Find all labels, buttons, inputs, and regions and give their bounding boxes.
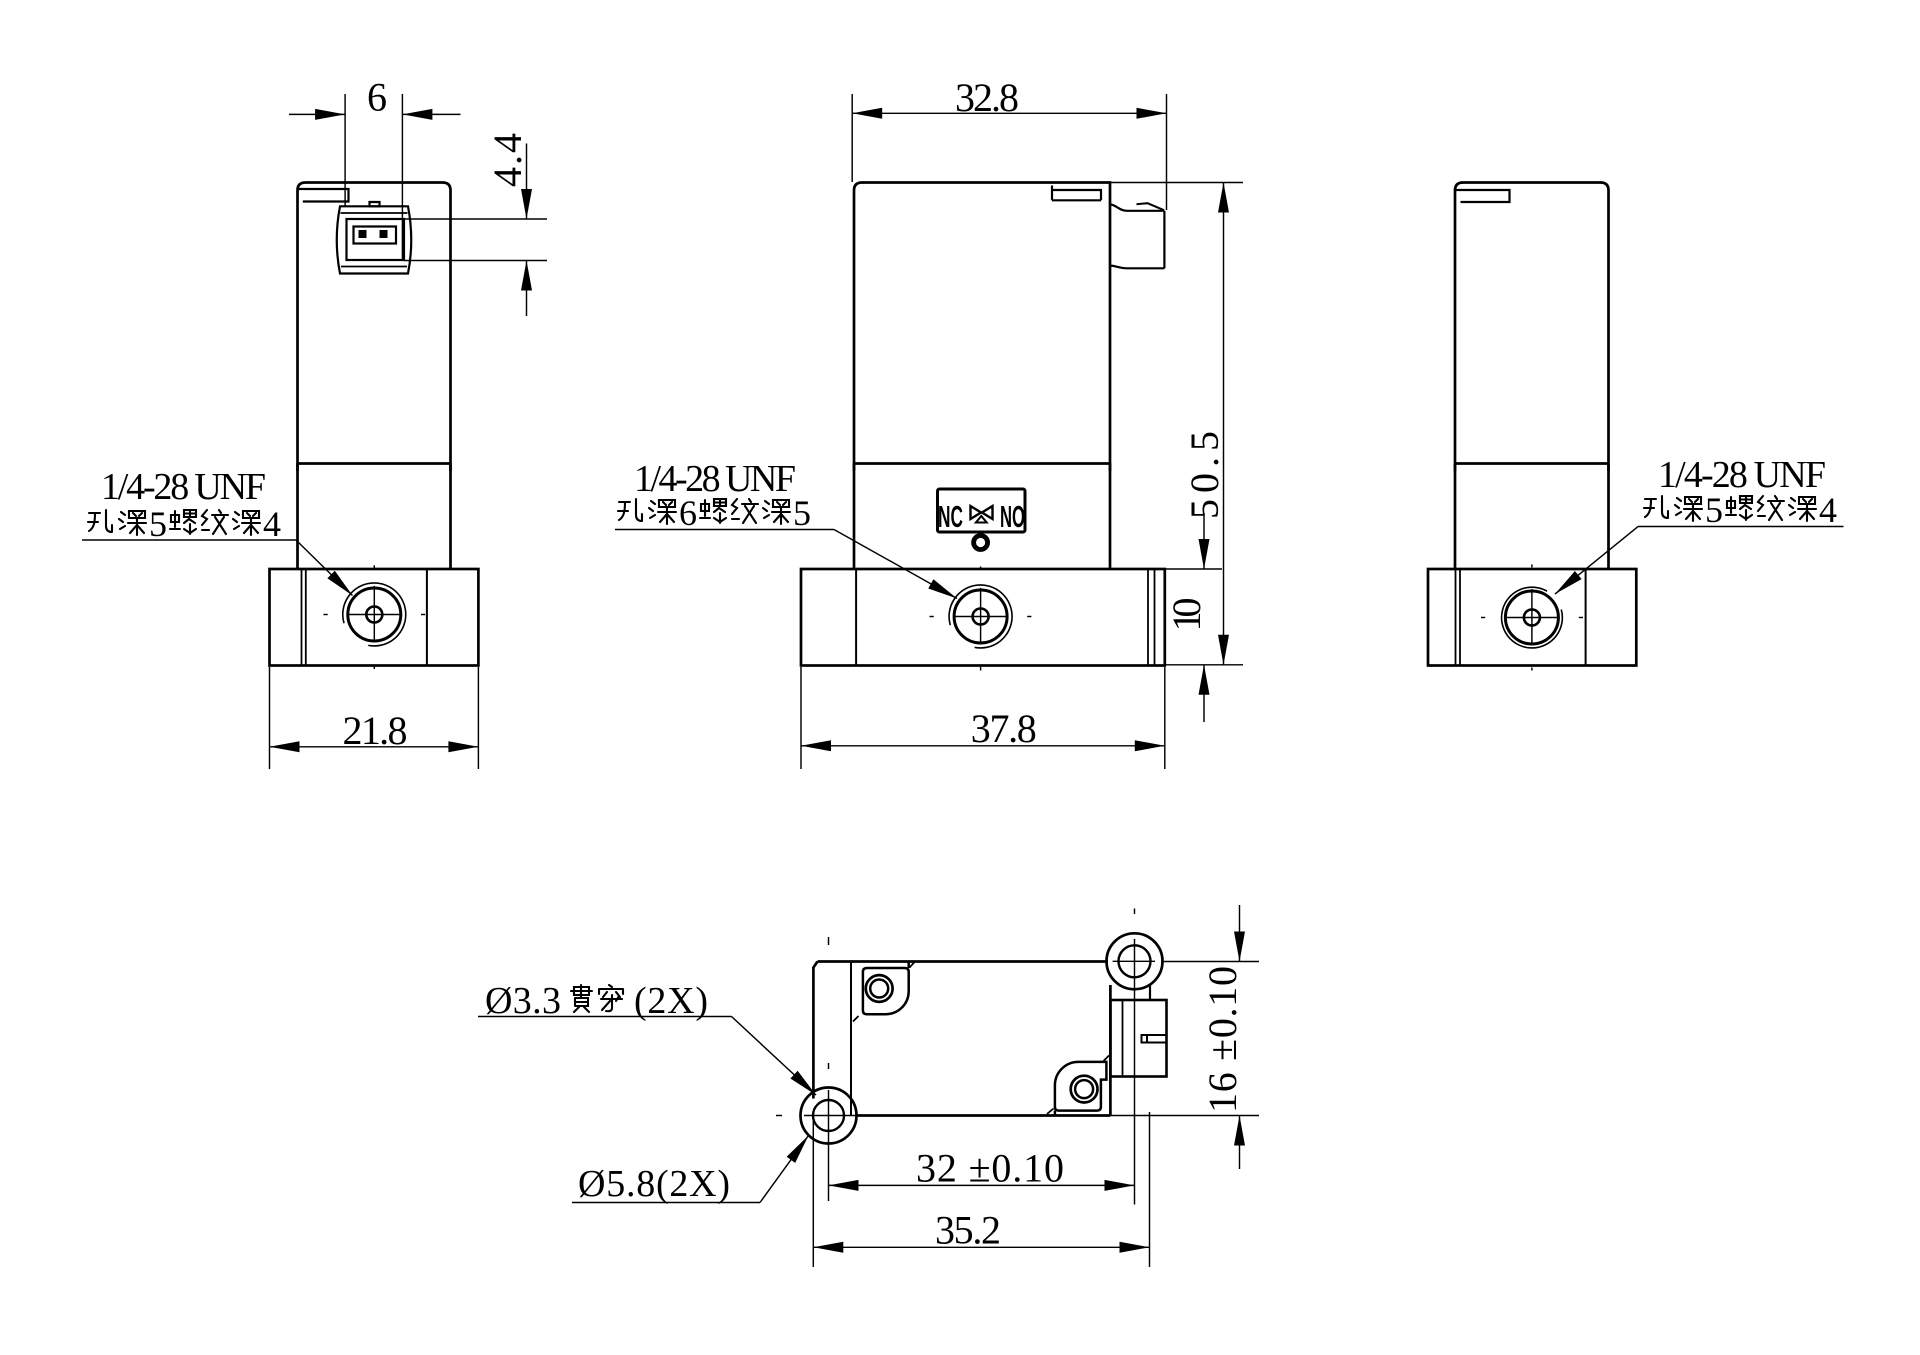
svg-text:NO: NO [1000,499,1025,534]
svg-text:Ø3.3: Ø3.3 [485,980,561,1022]
svg-text:32 ±0.10: 32 ±0.10 [916,1145,1064,1190]
svg-text:(2X): (2X) [634,980,708,1022]
svg-text:6: 6 [367,75,387,120]
svg-text:4: 4 [1819,490,1837,530]
svg-text:32.8: 32.8 [955,75,1019,120]
svg-text:5: 5 [1705,490,1723,530]
svg-text:5: 5 [149,504,167,544]
svg-text:37.8: 37.8 [971,706,1037,751]
svg-text:21.8: 21.8 [343,708,408,753]
svg-text:NC: NC [938,499,963,534]
svg-text:5: 5 [793,493,811,533]
svg-text:1/4-28 UNF: 1/4-28 UNF [101,466,266,508]
svg-text:16 ±0.10: 16 ±0.10 [1200,966,1245,1113]
svg-text:1/4-28 UNF: 1/4-28 UNF [634,458,796,500]
svg-text:Ø5.8(2X): Ø5.8(2X) [578,1163,730,1205]
svg-text:35.2: 35.2 [935,1208,1001,1253]
svg-text:4.4: 4.4 [485,133,530,187]
svg-text:10: 10 [1164,598,1209,632]
svg-text:6: 6 [679,493,697,533]
svg-text:1/4-28 UNF: 1/4-28 UNF [1658,454,1826,496]
svg-text:50.5: 50.5 [1182,431,1227,519]
svg-text:4: 4 [263,504,281,544]
